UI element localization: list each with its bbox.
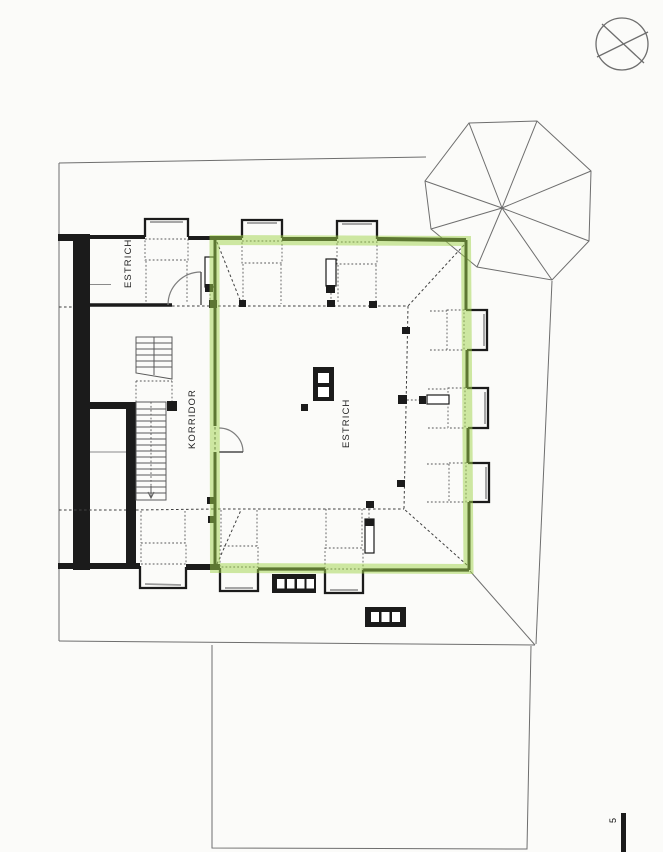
chimney-double-flue	[313, 367, 334, 401]
chimney-triple-flue	[365, 607, 406, 627]
room-labels: ESTRICH KORRIDOR ESTRICH	[123, 239, 352, 449]
page-marker: 5	[608, 813, 626, 852]
page-marker-number: 5	[608, 818, 618, 823]
north-indicator-icon	[596, 18, 648, 70]
partition-thin-lines	[90, 285, 126, 453]
chimney-quad-flue	[272, 574, 316, 593]
door-corridor	[168, 272, 201, 305]
label-attic-main: ESTRICH	[341, 399, 352, 448]
door-attic-main	[219, 428, 243, 452]
label-korridor: KORRIDOR	[187, 389, 198, 449]
staircase	[136, 337, 172, 500]
floorplan-drawing: ESTRICH KORRIDOR ESTRICH 5	[0, 0, 663, 852]
floorplan-page: ESTRICH KORRIDOR ESTRICH 5	[0, 0, 663, 852]
tower-roof-octagon	[425, 121, 591, 280]
label-attic-left: ESTRICH	[123, 239, 134, 288]
